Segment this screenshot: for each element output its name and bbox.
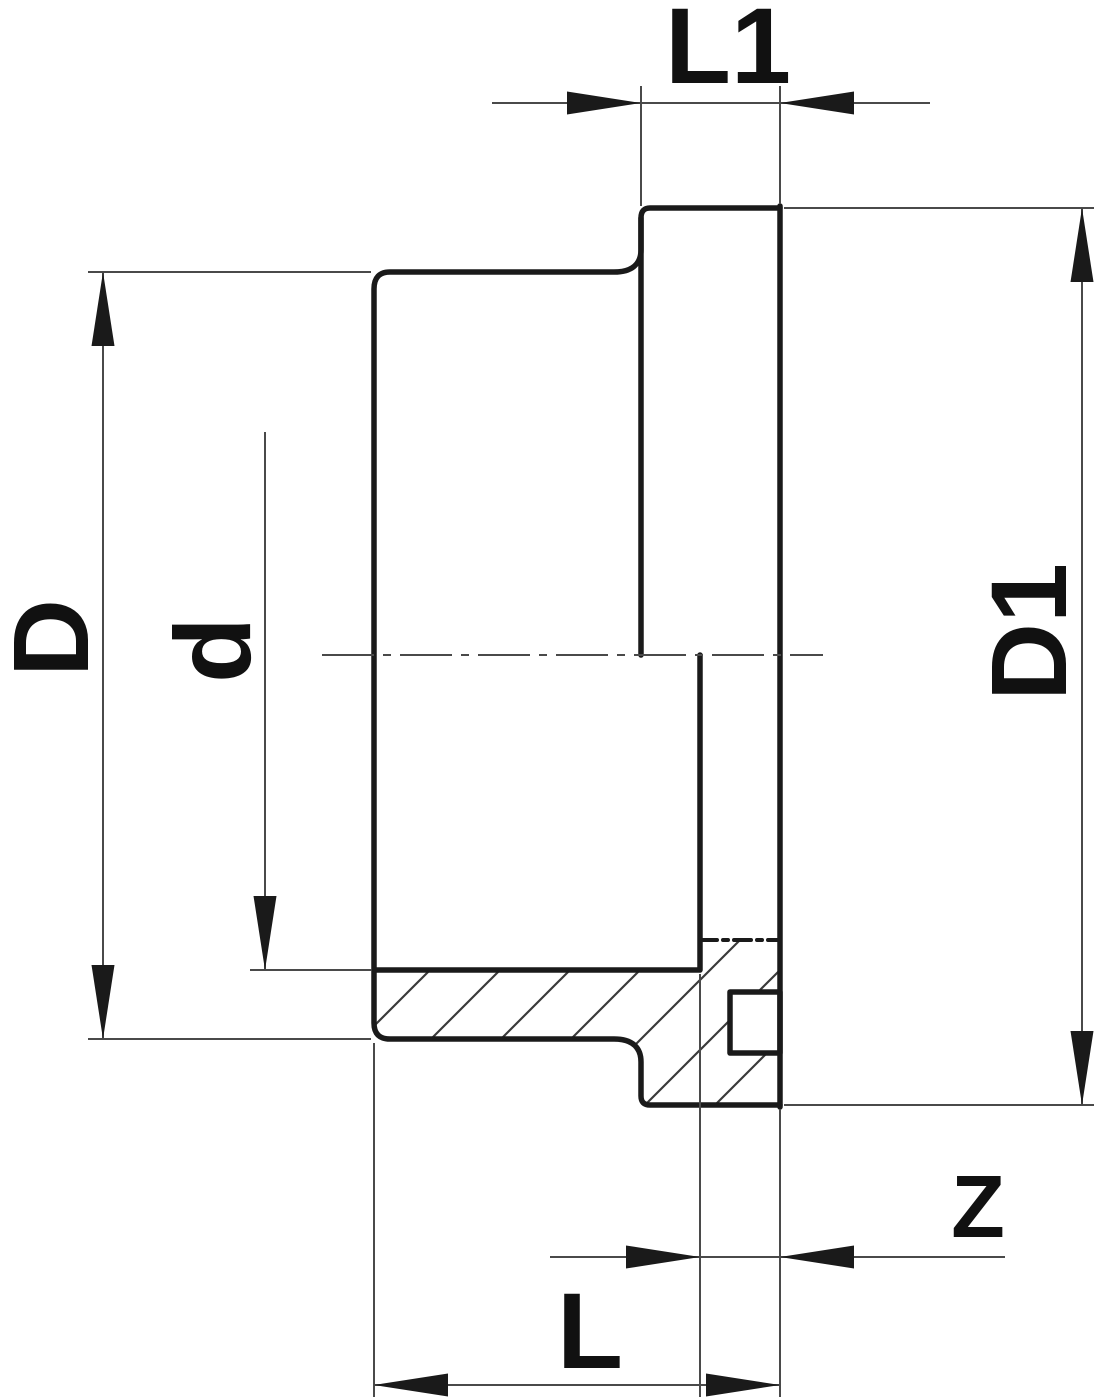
- dim-label-d-bore: d: [152, 617, 273, 683]
- dim-label-l: L: [557, 1270, 623, 1391]
- technical-drawing: L1 D d D1 Z L: [0, 0, 1096, 1400]
- drawing-background: [0, 0, 1096, 1400]
- dim-label-l1: L1: [665, 0, 791, 106]
- dim-label-d-outer: D: [0, 599, 111, 677]
- dim-label-d1: D1: [968, 563, 1089, 701]
- technical-drawing-page: L1 D d D1 Z L: [0, 0, 1096, 1400]
- dim-label-z: Z: [951, 1157, 1005, 1256]
